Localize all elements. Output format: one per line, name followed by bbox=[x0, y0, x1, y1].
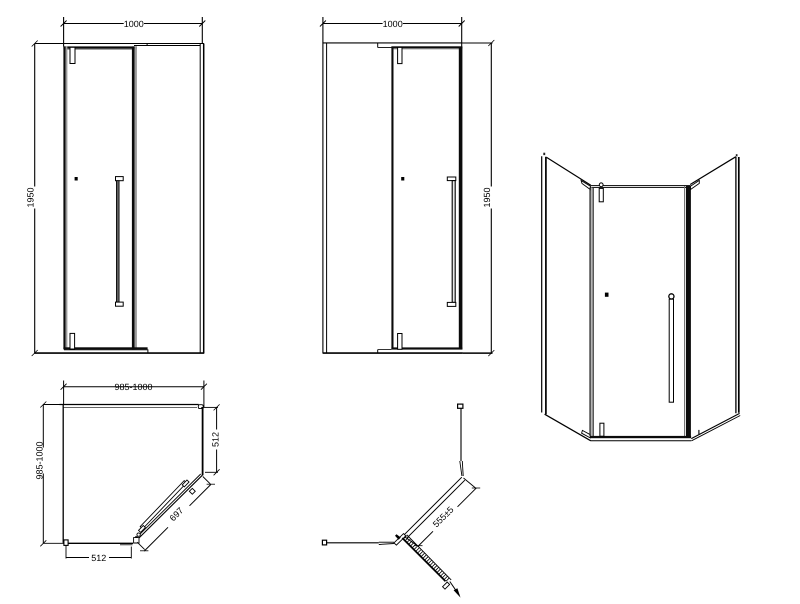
svg-text:1000: 1000 bbox=[383, 19, 403, 29]
svg-text:985-1000: 985-1000 bbox=[35, 441, 45, 479]
svg-text:1950: 1950 bbox=[25, 187, 35, 207]
svg-text:1000: 1000 bbox=[124, 19, 144, 29]
svg-text:1950: 1950 bbox=[482, 187, 492, 207]
svg-text:512: 512 bbox=[91, 553, 106, 563]
svg-text:985-1000: 985-1000 bbox=[114, 382, 152, 392]
svg-text:512: 512 bbox=[211, 432, 221, 447]
